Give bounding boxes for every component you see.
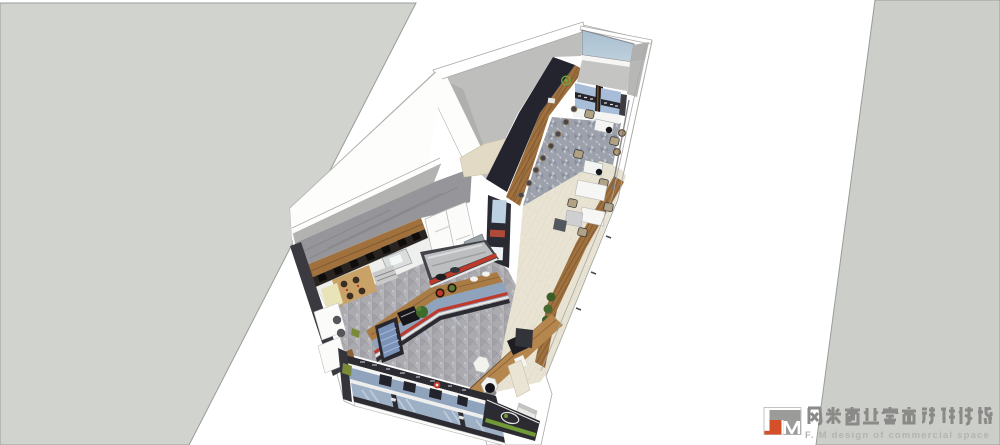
svg-text:F. M design of commercial spac: F. M design of commercial space <box>805 430 990 441</box>
